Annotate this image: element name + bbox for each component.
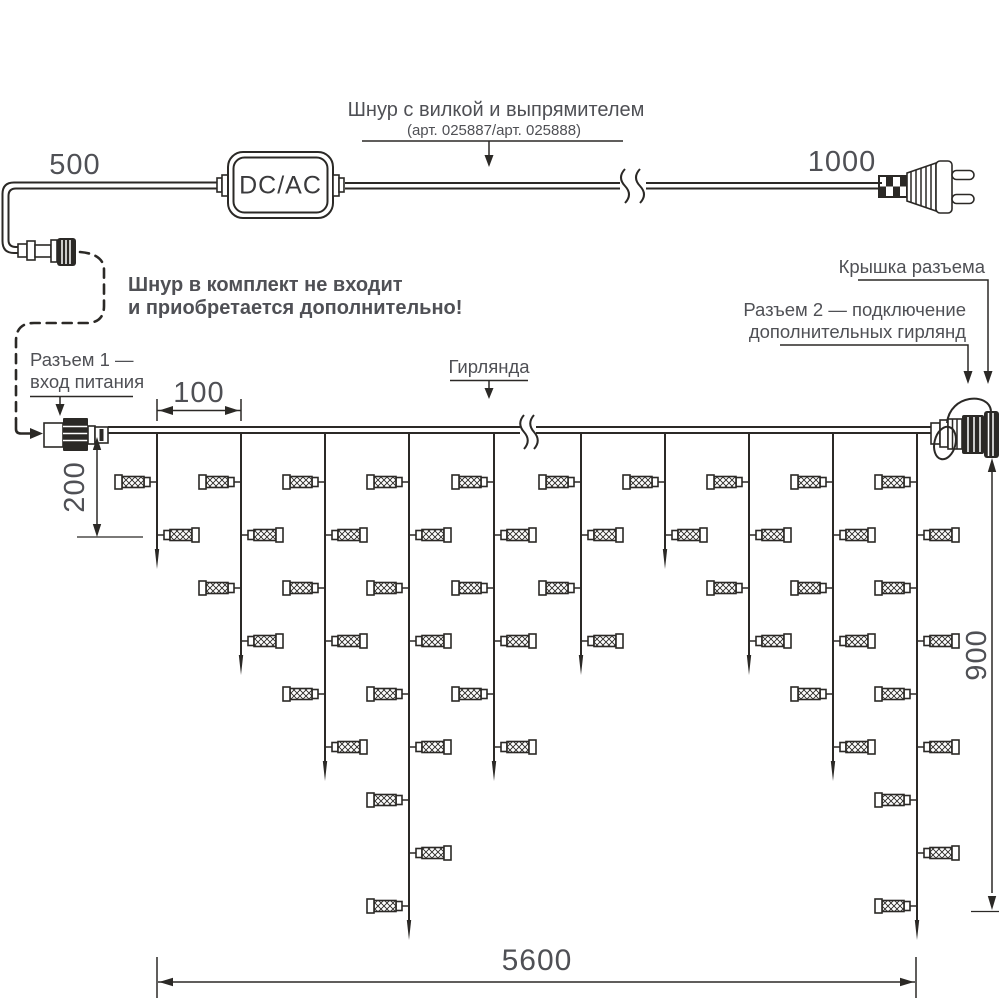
lamp-icon [157,528,199,542]
lamp-icon [833,634,875,648]
garland-drop [115,433,199,569]
dim-900-label: 900 [961,629,993,680]
lamp-icon [409,634,451,648]
garland-drop [452,433,536,781]
dim-200-label: 200 [59,461,91,512]
garland-drops [115,433,959,940]
cord-title-callout: Шнур с вилкой и выпрямителем (арт. 02588… [348,99,645,167]
lamp-icon [367,687,409,701]
dim-5600-label: 5600 [502,944,573,977]
garland-diagram: 500 DC/AC 1000 [0,0,1000,1000]
lamp-icon [539,475,581,489]
drop-tip-icon [239,655,243,675]
lamp-icon [707,475,749,489]
note-line1: Шнур в комплект не входит [128,274,403,296]
lamp-icon [875,475,917,489]
lamp-icon [199,581,241,595]
lamp-icon [494,634,536,648]
lamp-icon [367,793,409,807]
connector-cap-icon [984,411,999,458]
dim-900: 900 [961,458,999,912]
arrow-right-icon [225,406,239,415]
drop-tip-icon [831,761,835,781]
lamp-icon [283,581,325,595]
note-line2: и приобретается дополнительно! [128,297,462,319]
arrow-down-icon [485,155,494,167]
arrow-right-icon [900,978,914,986]
garland-drop [875,433,959,940]
dcac-converter: DC/AC [217,152,344,218]
drop-tip-icon [492,761,496,781]
lamp-icon [917,634,959,648]
dcac-label: DC/AC [239,172,322,200]
cord-outline-inner [9,189,218,248]
garland-drop [199,433,283,675]
lamp-icon [367,581,409,595]
garland-drop [283,433,367,781]
lamp-icon [409,528,451,542]
lamp-icon [325,634,367,648]
lamp-icon [581,634,623,648]
lamp-icon [452,687,494,701]
lamp-icon [917,846,959,860]
lamp-icon [581,528,623,542]
arrow-down-icon [93,524,101,537]
dim-100-label: 100 [173,377,224,409]
drop-tip-icon [579,655,583,675]
dim-500-label: 500 [49,149,100,181]
lamp-icon [749,528,791,542]
lamp-icon [875,687,917,701]
garland-drop [623,433,707,569]
lamp-icon [539,581,581,595]
wire-break-icon [520,415,528,449]
connector1-line2: вход питания [30,371,144,392]
cord-article: (арт. 025887/арт. 025888) [407,122,581,139]
lamp-icon [241,634,283,648]
lamp-icon [283,475,325,489]
lamp-icon [325,740,367,754]
lamp-icon [494,740,536,754]
connector2-callout: Разъем 2 — подключение дополнительных ги… [743,299,972,384]
drop-tip-icon [407,920,411,940]
drop-tip-icon [747,655,751,675]
lamp-icon [833,740,875,754]
lamp-icon [115,475,157,489]
lamp-icon [917,528,959,542]
plug-prong [952,171,974,180]
lamp-icon [875,899,917,913]
dim-5600: 5600 [157,944,916,998]
cord-break-icon [621,169,629,203]
drop-tip-icon [915,920,919,940]
lamp-icon [875,581,917,595]
lamp-icon [199,475,241,489]
garland-drop [367,433,451,940]
lamp-icon [283,687,325,701]
arrow-down-icon [988,896,996,910]
lamp-icon [367,899,409,913]
garland-drop [539,433,623,675]
cap-label: Крышка разъема [839,256,986,277]
garland-label: Гирлянда [448,356,530,377]
arrow-right-icon [30,428,43,439]
lamp-icon [452,581,494,595]
lamp-icon [409,846,451,860]
garland-callout: Гирлянда [448,356,530,399]
arrow-down-icon [56,404,65,416]
lamp-icon [917,740,959,754]
lamp-icon [833,528,875,542]
power-cord-assembly: 500 DC/AC 1000 [3,99,975,266]
lamp-icon [749,634,791,648]
dim-1000-label: 1000 [808,146,877,178]
dim-100: 100 [157,377,241,421]
lamp-icon [325,528,367,542]
garland-wire [108,415,931,449]
arrow-down-icon [485,388,494,399]
arrow-down-icon [984,371,993,384]
arrow-down-icon [964,371,973,384]
drop-tip-icon [155,549,159,569]
garland-drop [791,433,875,781]
cord-title: Шнур с вилкой и выпрямителем [348,99,645,121]
lamp-icon [791,687,833,701]
connector1-line1: Разъем 1 — [30,349,134,370]
drop-tip-icon [323,761,327,781]
lamp-icon [875,793,917,807]
lamp-icon [367,475,409,489]
lamp-icon [241,528,283,542]
diagram-page: 500 DC/AC 1000 [0,0,1000,1000]
lamp-icon [665,528,707,542]
cord-to-plug [345,169,882,203]
power-plug-icon [879,161,974,213]
lamp-icon [409,740,451,754]
cap-callout: Крышка разъема [839,256,993,384]
arrow-left-icon [159,978,173,986]
connector1-callout: Разъем 1 — вход питания [30,349,144,416]
connector2-line1: Разъем 2 — подключение [743,299,966,320]
lamp-icon [791,475,833,489]
connector2-line2: дополнительных гирлянд [749,321,966,342]
drop-tip-icon [663,549,667,569]
lamp-icon [707,581,749,595]
lamp-icon [791,581,833,595]
power-male-connector-icon [18,238,76,266]
lamp-icon [494,528,536,542]
connector2-icon [931,399,999,462]
lamp-icon [452,475,494,489]
garland-drop [707,433,791,675]
lamp-icon [623,475,665,489]
arrow-left-icon [159,406,173,415]
plug-prong [952,195,974,204]
arrow-up-icon [988,458,996,472]
